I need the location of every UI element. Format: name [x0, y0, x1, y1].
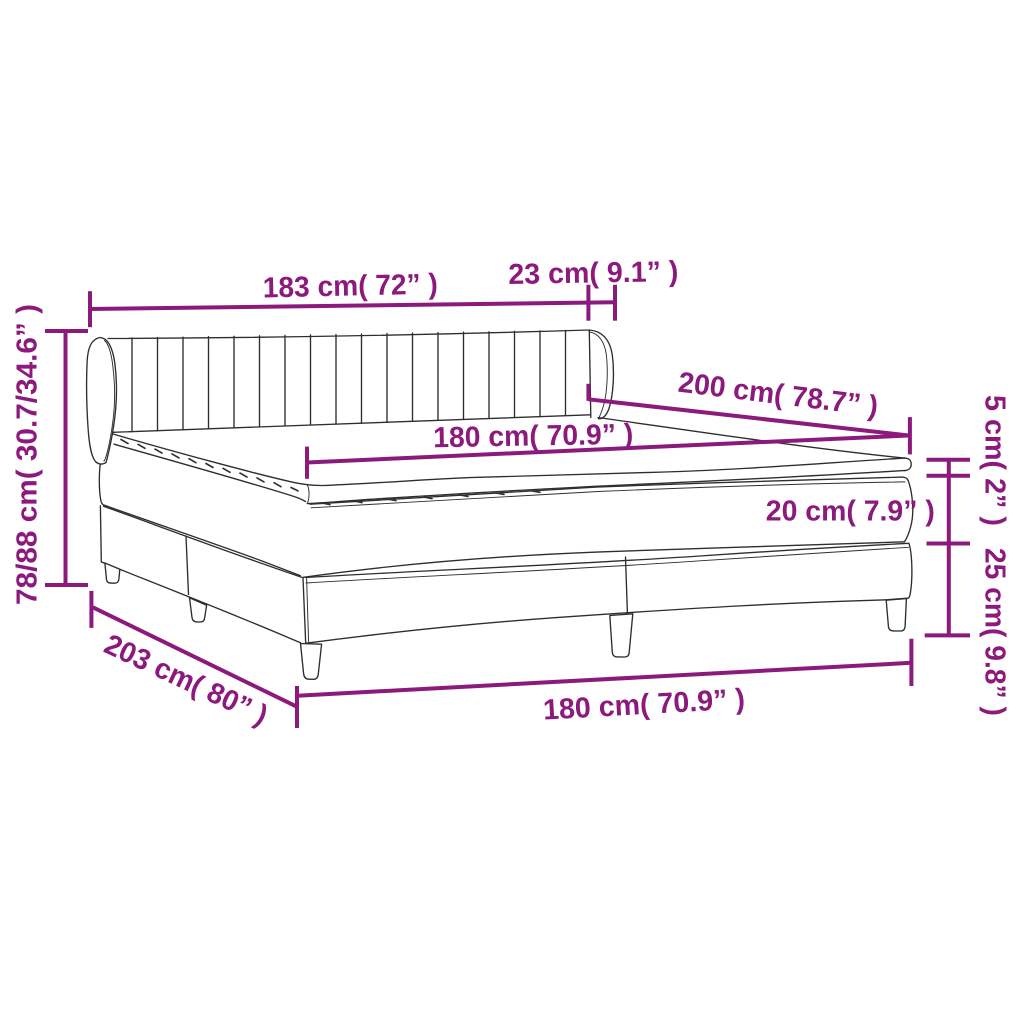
- svg-text:25 cm( 9.8” ): 25 cm( 9.8” ): [979, 548, 1011, 716]
- svg-text:180 cm( 70.9” ): 180 cm( 70.9” ): [433, 419, 634, 454]
- svg-text:23 cm( 9.1” ): 23 cm( 9.1” ): [508, 256, 679, 291]
- svg-text:5 cm( 2” ): 5 cm( 2” ): [979, 395, 1011, 526]
- svg-text:183 cm( 72” ): 183 cm( 72” ): [262, 269, 438, 305]
- svg-text:78/88 cm( 30.7/34.6” ): 78/88 cm( 30.7/34.6” ): [12, 304, 44, 605]
- svg-text:20 cm( 7.9” ): 20 cm( 7.9” ): [766, 496, 935, 528]
